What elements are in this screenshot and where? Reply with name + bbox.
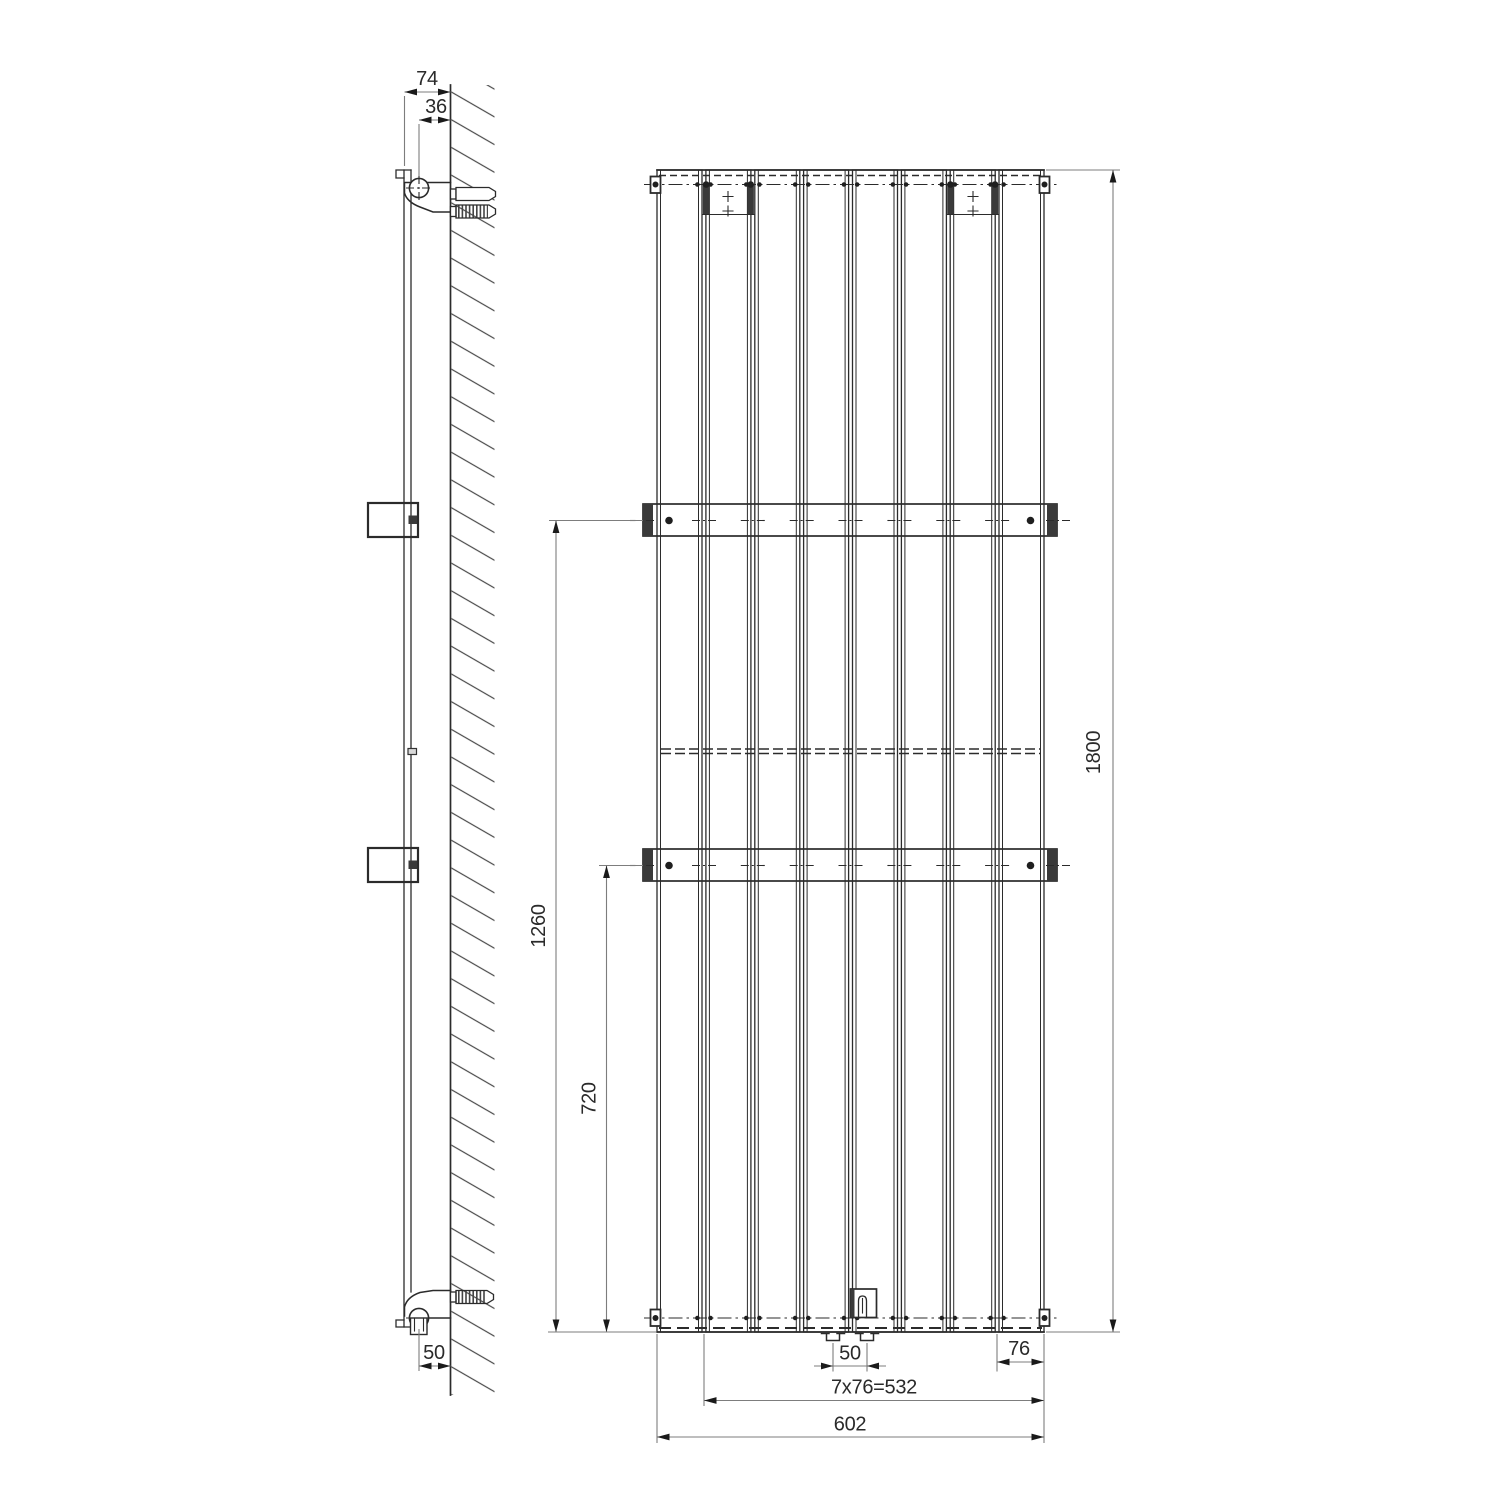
dim-bottom-valve-to-wall: 50	[423, 1342, 445, 1364]
panel-clip	[408, 749, 417, 755]
radiator-technical-drawing: 74 36 50	[0, 0, 1500, 1500]
rail-screw	[1027, 862, 1035, 870]
dim-overall-width: 602	[834, 1414, 867, 1436]
bottom-valve-fitting	[851, 1289, 877, 1318]
dim-lower-rail-height: 720	[579, 1082, 601, 1115]
side-view: 74 36 50	[368, 68, 496, 1395]
dim-pitch-total: 7x76=532	[831, 1377, 917, 1399]
connection-hooks	[822, 1334, 879, 1341]
dim-upper-rail-height: 1260	[528, 904, 550, 947]
dim-overall-height: 1800	[1083, 731, 1105, 774]
wall-anchor-top-1	[451, 188, 496, 201]
bottom-pipe-bracket	[405, 1291, 451, 1335]
dim-connection-spacing: 50	[839, 1343, 861, 1365]
dim-edge-pitch: 76	[1008, 1338, 1030, 1360]
wall-section	[451, 85, 495, 1395]
technical-drawing-page: 74 36 50	[0, 0, 1500, 1500]
dim-pipe-to-wall: 36	[425, 96, 447, 118]
rail-screw	[665, 862, 673, 870]
rail-screw	[1027, 517, 1035, 525]
panels	[657, 170, 1044, 1332]
front-view	[630, 170, 1070, 1341]
rail-screw	[665, 517, 673, 525]
dim-depth-total: 74	[416, 68, 438, 90]
panel-profile	[396, 170, 417, 1327]
